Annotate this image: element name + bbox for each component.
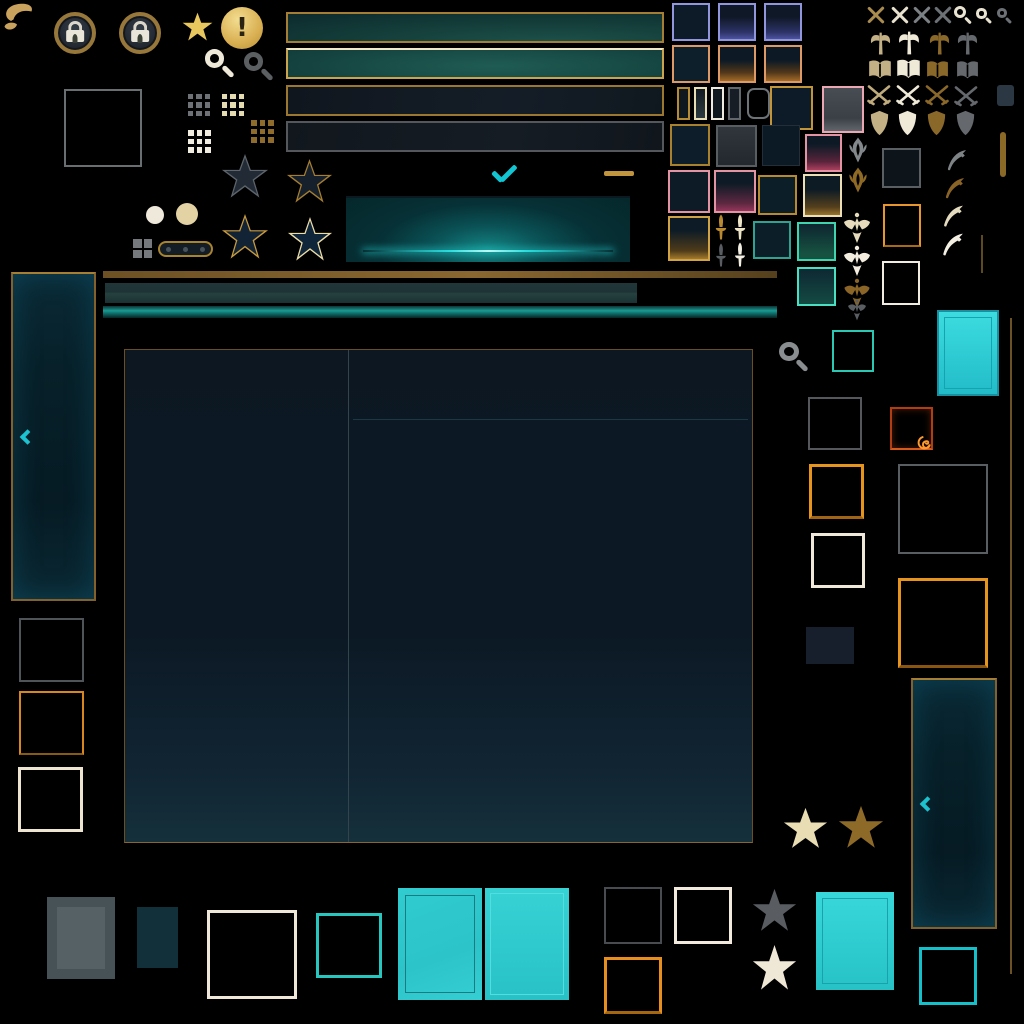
slot-frame-gray-b[interactable] [604,887,662,944]
item-slot-gold-lg[interactable] [770,86,813,130]
grid-icon-brown[interactable] [251,120,274,143]
mini-bar-gray[interactable] [728,87,741,120]
star-filled-gray [752,888,797,933]
mini-bar-white[interactable] [711,87,724,120]
button-teal-filled-1[interactable] [398,888,482,1000]
mini-bar-gold[interactable] [677,87,690,120]
menu-bar-navy-gray[interactable] [286,121,664,152]
chip-navy [997,85,1014,106]
item-slot-pink-gray[interactable] [822,86,864,133]
grid-icon-white[interactable] [188,130,211,153]
slider-pill[interactable] [158,241,213,257]
divider-teal [103,306,777,318]
lock-badge-icon-2 [119,12,161,54]
button-teal-filled-2[interactable] [485,888,569,1000]
slot-frame-orange-r[interactable] [883,204,921,247]
grid-icon-cream[interactable] [222,94,244,116]
item-slot-peach-3[interactable] [764,45,802,83]
book-icon-gray [955,60,980,81]
item-slot-lavender-1[interactable] [672,3,710,41]
star-filled-cream-2 [752,944,797,992]
mini-bar-cream[interactable] [694,87,707,120]
divider-brown [103,271,777,278]
slot-frame-teal-br[interactable] [919,947,977,1005]
crest-icon-gray [847,137,869,163]
slot-frame-orange-lg[interactable] [898,578,988,668]
divider-slate [105,283,637,303]
shield-icon-cream [898,110,917,136]
grid-icon-2x2-gray[interactable] [133,239,152,258]
slot-frame-gray-r[interactable] [882,148,921,188]
chip-navy-lg [806,627,854,664]
slot-frame-gray-m[interactable] [808,397,862,450]
content-panel [124,349,753,843]
menu-bar-teal[interactable] [286,12,664,43]
lock-badge-icon-1 [54,12,96,54]
item-slot-teal-1[interactable] [753,221,791,259]
glow-banner-button[interactable] [346,196,630,262]
close-icon-cream[interactable] [890,6,910,23]
slot-frame-cream-b[interactable] [674,887,732,944]
knife-icon-gray [943,148,969,174]
axe-icon-gray [955,31,980,56]
knife-icon-white [938,231,966,260]
item-slot-cream-e[interactable] [803,174,842,217]
shield-icon-brown [927,110,946,136]
vline-brown [1010,318,1012,974]
side-panel-left[interactable] [11,272,96,601]
sprite-atlas: ! [0,0,1024,1024]
search-icon-sm-3[interactable] [997,8,1013,24]
slot-frame-teal-r[interactable] [832,330,874,372]
flame-slot[interactable] [890,407,933,450]
gold-bar-vertical [1000,132,1006,177]
slot-frame-orange-left[interactable] [19,691,84,755]
dot-cream [176,203,198,225]
search-icon-sm-1[interactable] [954,6,974,26]
rating-star-gray[interactable] [221,153,269,200]
sprite-icon-gray [845,299,869,321]
button-teal-filled-b[interactable] [816,892,894,990]
slot-frame-white-b[interactable] [207,910,297,999]
item-slot-lavender-3[interactable] [764,3,802,41]
item-slot-gold-e[interactable] [758,175,797,215]
hunt-icon-cream [894,84,922,106]
divider-dash-gold [604,171,634,176]
shield-icon-gray [956,110,975,136]
menu-bar-teal-active[interactable] [286,48,664,79]
item-slot-lavender-2[interactable] [718,3,756,41]
grid-icon-gray[interactable] [188,94,210,116]
rating-star-gold[interactable] [286,158,333,205]
sword-pip-gold [714,214,728,240]
close-icon-gray-1[interactable] [912,6,932,23]
hat-icon [2,2,40,34]
search-icon-cream[interactable] [204,48,237,80]
rating-star-bright[interactable] [287,216,333,263]
square-frame-gray-sm[interactable] [64,89,142,167]
button-teal-filled[interactable] [937,310,999,396]
slot-frame-gray-left[interactable] [19,618,84,682]
star-icon-gold [182,12,213,42]
item-slot-peach-1[interactable] [672,45,710,83]
dot-white [146,206,164,224]
slot-frame-white-r[interactable] [882,261,920,305]
panel-navy-b [137,907,178,968]
item-slot-gray-d[interactable] [716,125,757,167]
axe-icon-tan [868,31,893,56]
item-slot-pink-d[interactable] [805,134,842,172]
axe-icon-cream [896,30,922,56]
close-icon-gold[interactable] [866,6,886,23]
item-slot-pink-e1[interactable] [668,170,710,213]
item-slot-gold-d[interactable] [670,124,710,166]
item-slot-teal-2[interactable] [797,222,836,261]
menu-bar-navy-gold[interactable] [286,85,664,116]
item-slot-peach-2[interactable] [718,45,756,83]
book-icon-brown [925,60,950,81]
item-slot-teal-3[interactable] [797,267,836,306]
shield-icon-tan [870,110,889,136]
knife-icon-cream [939,203,966,231]
rounded-frame-gray[interactable] [747,88,770,119]
check-icon[interactable] [490,162,520,186]
rating-star-gold-2[interactable] [221,213,269,261]
slot-frame-orange-b[interactable] [604,957,662,1014]
book-icon-cream [895,58,922,81]
book-icon-tan [867,59,893,81]
sword-pip-cream [733,214,747,240]
panel-gray-b [47,897,115,979]
hunt-icon-brown [923,84,951,106]
search-icon-sm-2[interactable] [976,8,993,25]
slot-frame-teal-b2[interactable] [316,913,382,978]
close-icon-gray-2[interactable] [933,6,953,23]
star-filled-brown [838,805,884,850]
item-slot-gold-f[interactable] [668,216,710,261]
search-icon-gray[interactable] [243,51,276,83]
knife-icon-brown [941,176,967,202]
item-slot-navy-d[interactable] [762,125,800,166]
line-brown-sm [981,235,983,273]
alert-badge-icon: ! [221,7,263,49]
hunt-icon-tan [865,84,893,106]
hunt-icon-gray [952,85,980,107]
slot-frame-orange-m[interactable] [809,464,864,519]
sword-pip-gray [714,243,728,267]
sprite-icon-white [843,245,871,277]
side-panel-right[interactable] [911,678,997,929]
slot-frame-cream-m[interactable] [811,533,865,588]
slot-frame-cream-left[interactable] [18,767,83,832]
sprite-icon-cream [843,212,871,244]
search-icon-gray-lg[interactable] [778,341,812,374]
axe-icon-brown [927,31,952,56]
item-slot-pink-e2[interactable] [714,170,756,213]
star-filled-cream-1 [783,807,828,850]
slot-frame-gray-lg[interactable] [898,464,988,554]
sword-pip-white [733,242,747,267]
crest-icon-gold [847,167,869,193]
